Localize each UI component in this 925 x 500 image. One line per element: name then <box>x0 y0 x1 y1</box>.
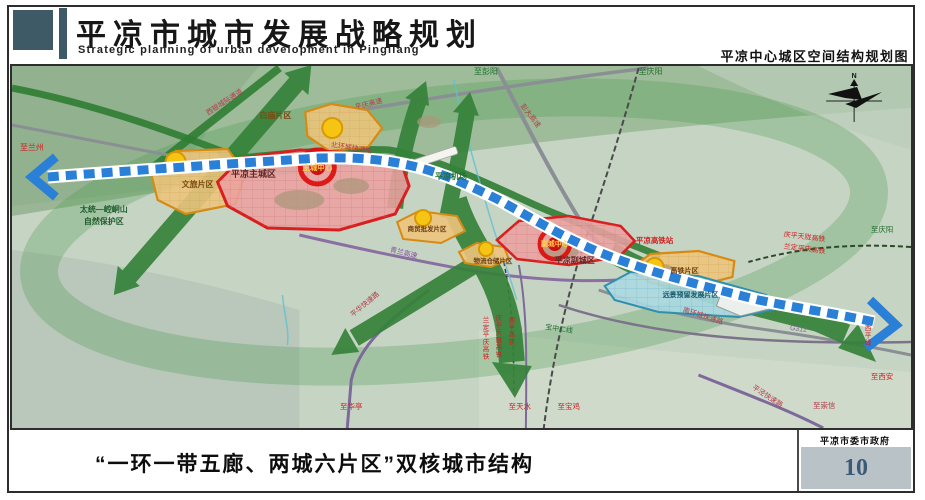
planning-slide: 平凉市城市发展战略规划 Strategic planning of urban … <box>0 0 925 500</box>
label-sub-core: 副城中心 <box>541 239 569 248</box>
label-landing-hsr-v: 兰定平庆高铁 <box>483 315 490 361</box>
label-xiping-line: 西平线 <box>865 324 872 347</box>
label-to-tianshui: 至天水 <box>509 401 532 411</box>
label-shangmao-district: 商贸批发片区 <box>408 224 447 233</box>
label-to-lanzhou: 至兰州 <box>20 142 44 152</box>
map-caption-title: 平凉中心城区空间结构规划图 <box>720 46 909 65</box>
logo-block-bar <box>59 8 67 59</box>
label-to-xian: 至西安 <box>871 371 893 381</box>
label-nature-reserve-line2: 自然保护区 <box>84 216 124 226</box>
label-to-qingyang-top: 至庆阳 <box>639 66 663 76</box>
label-main-core: 主城中心 <box>302 162 332 172</box>
label-wuliu-district: 物流仓储片区 <box>473 256 512 265</box>
label-wenlv-district: 文旅片区 <box>182 179 214 189</box>
label-sub-city: 平凉副城区 <box>555 255 595 265</box>
label-to-huating: 至华亭 <box>340 401 363 411</box>
label-to-baoji: 至宝鸡 <box>558 401 580 411</box>
page-number-badge: 10 <box>801 447 911 489</box>
label-xiping-hsr-v: 西平高铁 <box>509 316 516 346</box>
label-yuanjing-district: 远景预留发展片区 <box>663 290 719 299</box>
label-qingping-hsr-v: 庆平天陇高铁 <box>496 313 503 359</box>
map-frame: 至兰州太统—崆峒山自然保护区文旅片区白庙片区平凉主城区主城中心西银城际通道北环城… <box>10 64 913 430</box>
planning-map: 至兰州太统—崆峒山自然保护区文旅片区白庙片区平凉主城区主城中心西银城际通道北环城… <box>12 66 911 428</box>
label-to-qingyang-right: 至庆阳 <box>871 224 893 234</box>
label-main-city: 平凉主城区 <box>231 168 276 179</box>
logo-block-square <box>13 10 53 50</box>
label-nature-reserve-line1: 太统—崆峒山 <box>79 204 128 214</box>
agency-label: 平凉市委市政府 <box>799 434 911 447</box>
label-baimiao-district: 白庙片区 <box>259 110 291 120</box>
label-compass-n: N <box>852 73 857 80</box>
label-to-pengyang: 至彭阳 <box>474 66 498 76</box>
label-hsr-station: 平凉高铁站 <box>636 235 674 245</box>
label-airport: 平凉机场 <box>435 171 467 181</box>
label-to-chongxin: 至崇信 <box>813 400 836 410</box>
page-subtitle-en: Strategic planning of urban development … <box>78 44 420 56</box>
label-gaotie-district: 高铁片区 <box>671 266 699 275</box>
footer-band: “一环一带五廊、两城六片区”双核城市结构 平凉市委市政府 10 <box>10 430 913 492</box>
structure-caption: “一环一带五廊、两城六片区”双核城市结构 <box>95 448 534 478</box>
